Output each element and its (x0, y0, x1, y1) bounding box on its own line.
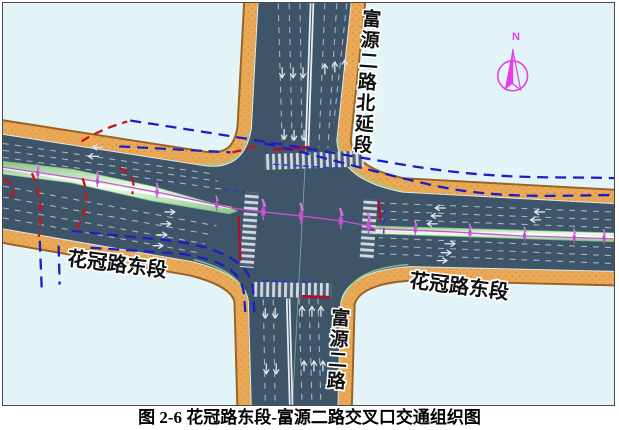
page: { "figure": { "caption": "图 2-6 花冠路东段-富源… (0, 0, 619, 430)
figure-caption: 图 2-6 花冠路东段-富源二路交叉口交通组织图 (0, 407, 619, 430)
compass-icon (498, 49, 528, 91)
compass-north-letter: N (507, 31, 525, 43)
traffic-diagram-svg (3, 3, 614, 405)
intersection-map-figure: 富源二路北延段 富源二路 花冠路东段 花冠路东段 N (2, 2, 615, 406)
